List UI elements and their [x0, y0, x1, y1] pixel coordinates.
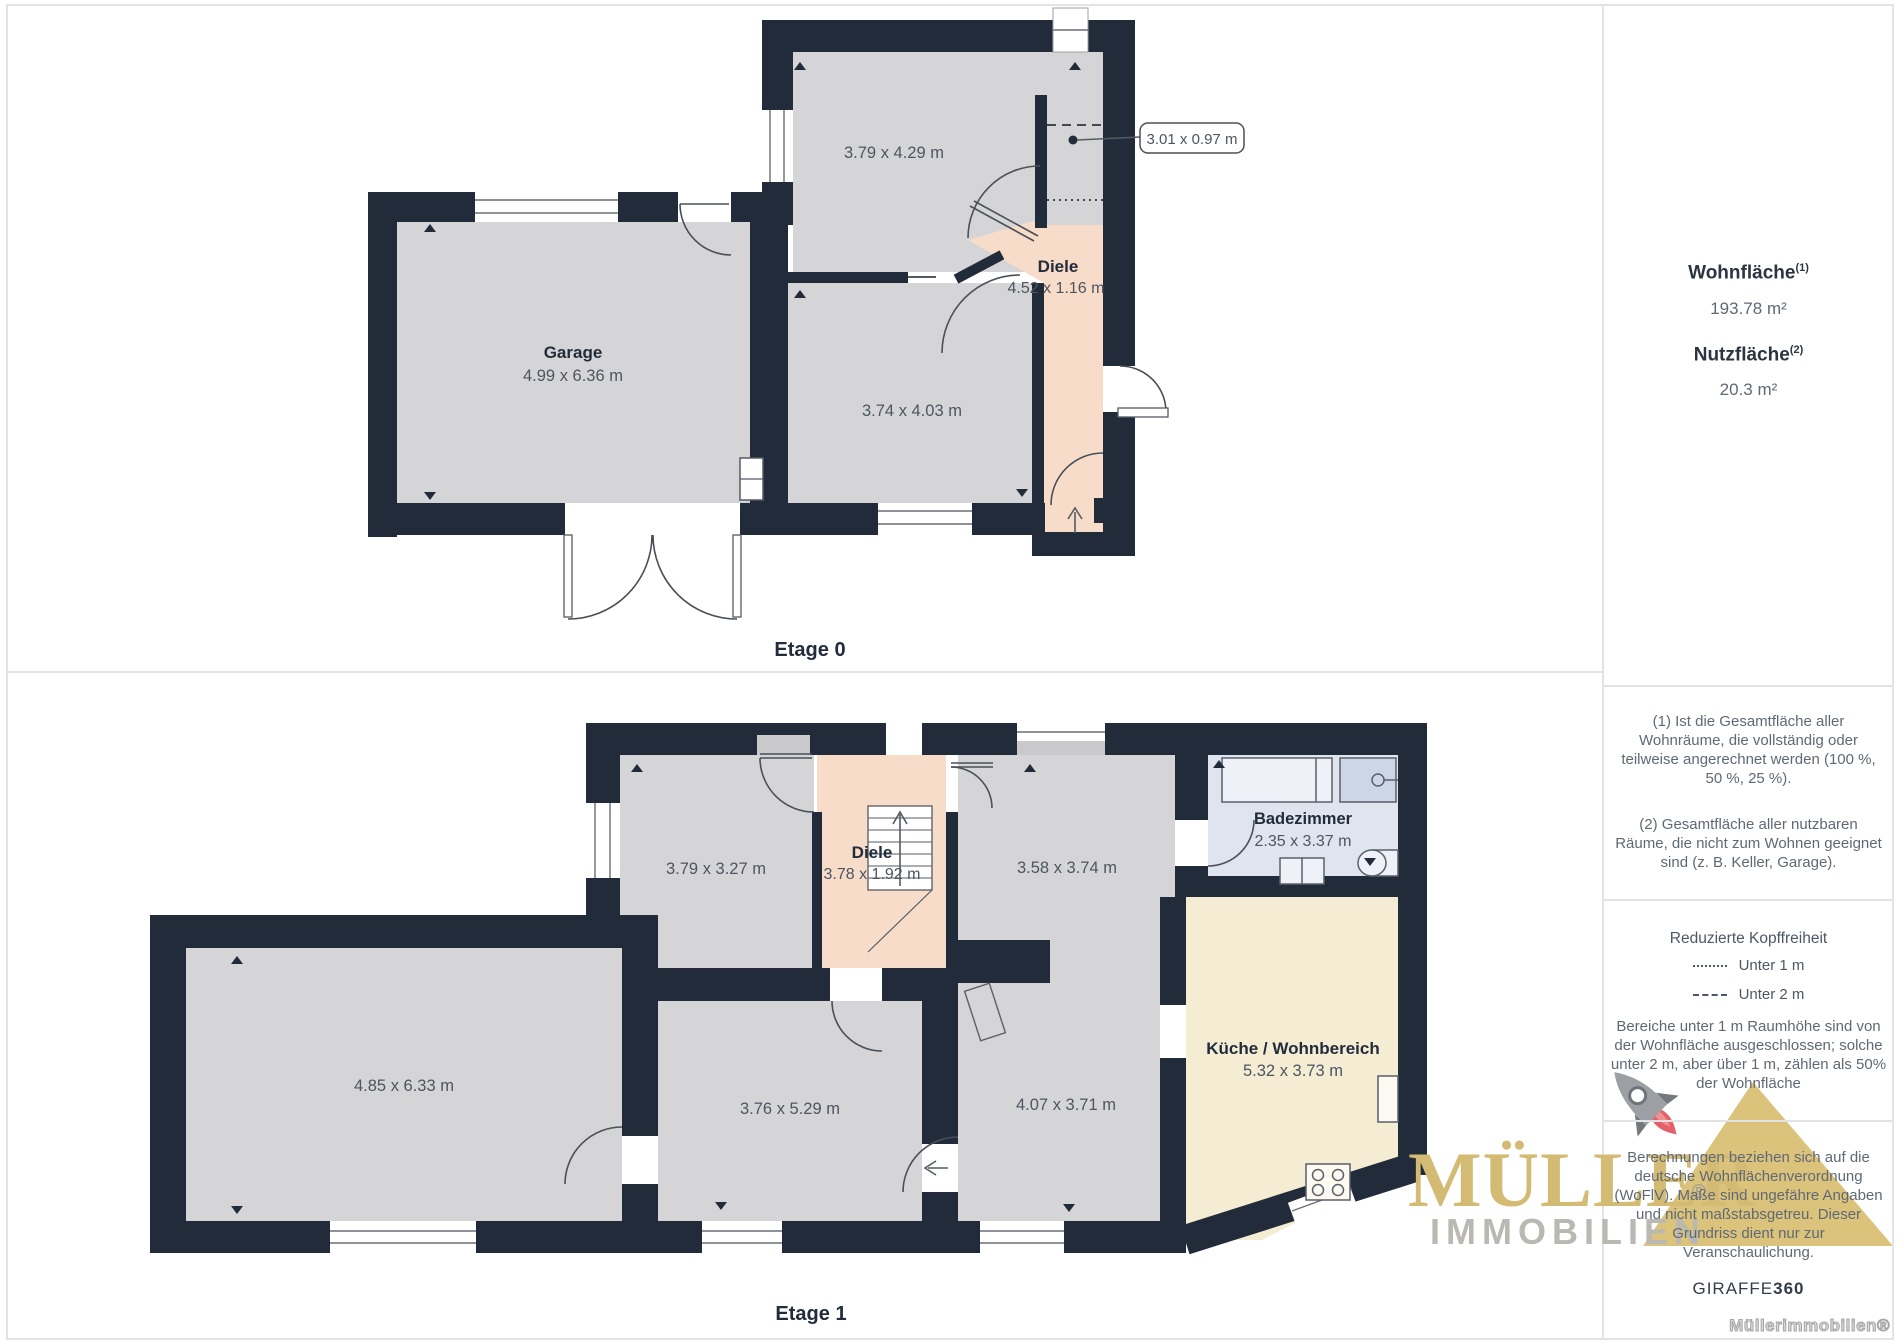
headroom-text: Bereiche unter 1 m Raumhöhe sind von der…: [1608, 1017, 1889, 1093]
kitchen-label: Küche / Wohnbereich: [1206, 1039, 1380, 1058]
room-garage-floor: [397, 222, 750, 503]
usable-area-label: Nutzfläche: [1694, 344, 1790, 365]
bathroom-dims: 2.35 x 3.37 m: [1255, 833, 1352, 850]
giraffe-360: 360: [1773, 1279, 1804, 1298]
stove: [1306, 1164, 1350, 1200]
legend-under-1m: Unter 1 m: [1603, 957, 1894, 974]
company-watermark: Müllerimmobilien®: [1729, 1316, 1890, 1336]
room-mid-dims: 3.74 x 4.03 m: [862, 402, 962, 420]
diele0-dims: 4.52 x 1.16 m: [1008, 280, 1105, 297]
usable-area-value: 20.3 m²: [1603, 380, 1894, 400]
garage-label: Garage: [544, 343, 603, 362]
etage0-title: Etage 0: [774, 639, 845, 661]
dotted-line-swatch: [1693, 965, 1727, 967]
legend-under-2m-label: Unter 2 m: [1739, 986, 1805, 1003]
counter: [1378, 1076, 1398, 1122]
living-area-label: Wohnfläche: [1688, 262, 1795, 283]
etage1-plan: 3.79 x 3.27 m Diele 3.78 x 1.92 m 3.58 x…: [150, 723, 1427, 1325]
legend-under-2m: Unter 2 m: [1603, 986, 1894, 1003]
diele1-dims: 3.78 x 1.92 m: [824, 866, 921, 883]
etage0-plan: 3.01 x 0.97 m Garage 4.99 x 6.36 m 3.79 …: [368, 8, 1244, 661]
diele1-label: Diele: [852, 843, 893, 862]
room-lr-dims: 4.07 x 3.71 m: [1016, 1096, 1116, 1114]
giraffe360-brand: GIRAFFE360: [1603, 1279, 1894, 1299]
footnote-2: (2) Gesamtfläche aller nutzbaren Räume, …: [1614, 815, 1883, 872]
boiler-fixture: [740, 458, 763, 500]
usable-area-sup: (2): [1790, 344, 1803, 356]
footnote-1: (1) Ist die Gesamtfläche aller Wohnräume…: [1614, 712, 1883, 788]
legend-under-1m-label: Unter 1 m: [1739, 957, 1805, 974]
giraffe-text: GIRAFFE: [1692, 1279, 1773, 1298]
diele0-label: Diele: [1038, 257, 1079, 276]
headroom-title: Reduzierte Kopffreiheit: [1603, 930, 1894, 948]
callout-label: 3.01 x 0.97 m: [1147, 131, 1238, 148]
callout-anchor-dot: [1069, 136, 1078, 145]
etage1-title: Etage 1: [775, 1303, 846, 1325]
calculation-note: Berechnungen beziehen sich auf die deuts…: [1614, 1148, 1883, 1262]
garage-dims: 4.99 x 6.36 m: [523, 367, 623, 385]
living-area-sup: (1): [1795, 262, 1808, 274]
usable-area-title: Nutzfläche(2): [1603, 344, 1894, 366]
room-top-dims: 3.79 x 4.29 m: [844, 144, 944, 162]
room-um-dims: 3.58 x 3.74 m: [1017, 859, 1117, 877]
kitchen-dims: 5.32 x 3.73 m: [1243, 1062, 1343, 1080]
room-big-dims: 4.85 x 6.33 m: [354, 1077, 454, 1095]
room-lm-dims: 3.76 x 5.29 m: [740, 1100, 840, 1118]
door-sill: [757, 735, 810, 755]
living-area-title: Wohnfläche(1): [1603, 262, 1894, 284]
room-mid-floor: [788, 283, 1040, 503]
living-area-value: 193.78 m²: [1603, 299, 1894, 319]
room-ul-dims: 3.79 x 3.27 m: [666, 860, 766, 878]
bathroom-label: Badezimmer: [1254, 810, 1353, 828]
dashed-line-swatch: [1693, 994, 1727, 996]
